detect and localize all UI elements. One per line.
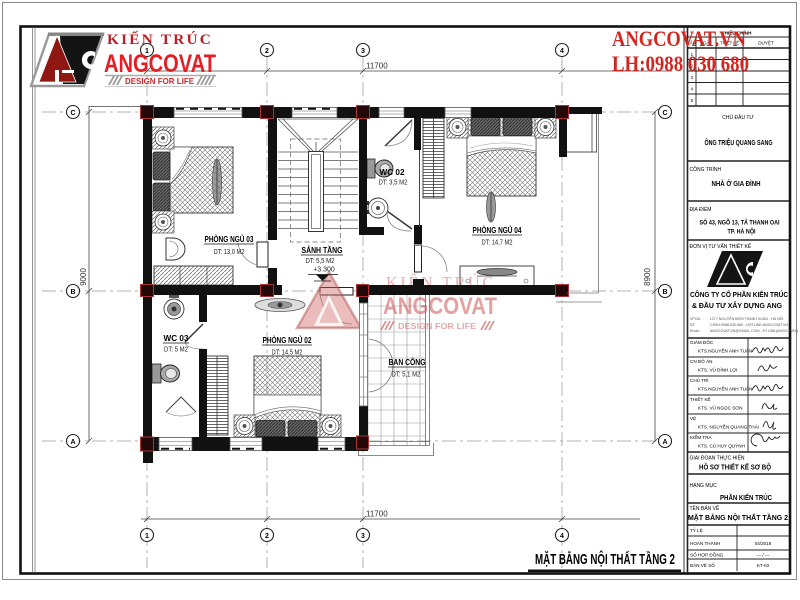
svg-text:DT: 3,5 M2: DT: 3,5 M2 <box>379 180 408 187</box>
svg-text:ĐỊA ĐIỂM: ĐỊA ĐIỂM <box>690 206 712 213</box>
svg-text:VẼ: VẼ <box>690 415 696 421</box>
svg-text:WC 02: WC 02 <box>380 167 405 177</box>
svg-text:DESIGN FOR LIFE: DESIGN FOR LIFE <box>125 76 194 86</box>
svg-text:3: 3 <box>361 48 365 55</box>
svg-text:HẠNG MỤC: HẠNG MỤC <box>690 483 718 489</box>
svg-text:A: A <box>662 439 667 446</box>
svg-text:SẢNH TẦNG: SẢNH TẦNG <box>302 244 343 255</box>
svg-text:DT: 5 M2: DT: 5 M2 <box>164 347 188 354</box>
svg-text:MẶT BẰNG NỘI THẤT TẦNG 2: MẶT BẰNG NỘI THẤT TẦNG 2 <box>535 550 675 568</box>
svg-text:TP. HÀ NỘI: TP. HÀ NỘI <box>728 227 756 236</box>
svg-text:4: 4 <box>560 533 564 540</box>
svg-text:HOÀN THÀNH: HOÀN THÀNH <box>690 540 720 546</box>
svg-text:CSKH:0988.030.680 - HOTLINE:AN: CSKH:0988.030.680 - HOTLINE:ANGCOVAT.VN <box>710 323 788 327</box>
svg-text:DT: 14,7 M2: DT: 14,7 M2 <box>482 240 513 247</box>
svg-text:& ĐẦU TƯ XÂY DỰNG ANG: & ĐẦU TƯ XÂY DỰNG ANG <box>692 300 782 310</box>
svg-text:3: 3 <box>361 533 365 540</box>
svg-text:Email:: Email: <box>690 329 700 333</box>
svg-text:CN ĐỒ ÁN: CN ĐỒ ÁN <box>690 358 712 364</box>
svg-text:ĐƠN VỊ TƯ VẤN THIẾT KẾ: ĐƠN VỊ TƯ VẤN THIẾT KẾ <box>690 243 752 250</box>
svg-text:LH:0988 030 680: LH:0988 030 680 <box>612 51 749 76</box>
svg-text:+3.300: +3.300 <box>313 267 335 274</box>
svg-text:KTS. VŨ NGỌC SƠN: KTS. VŨ NGỌC SƠN <box>698 405 743 411</box>
svg-text:--- / ---: --- / --- <box>756 553 769 558</box>
svg-text:VPGD:: VPGD: <box>690 317 701 321</box>
svg-text:CHỦ ĐẦU TƯ: CHỦ ĐẦU TƯ <box>722 114 754 121</box>
svg-text:ANGCOVAT: ANGCOVAT <box>104 50 216 78</box>
svg-text:PHÒNG NGỦ 02: PHÒNG NGỦ 02 <box>263 334 312 345</box>
svg-text:KTS. VŨ ĐÌNH LỢI: KTS. VŨ ĐÌNH LỢI <box>698 367 737 373</box>
svg-text:DT: 14,5 M2: DT: 14,5 M2 <box>272 350 303 357</box>
svg-text:KTS. CÙ HUY QUỲNH: KTS. CÙ HUY QUỲNH <box>698 443 745 449</box>
svg-text:ĐT:: ĐT: <box>690 323 696 327</box>
svg-text:1: 1 <box>145 533 149 540</box>
svg-text:9000: 9000 <box>79 268 88 286</box>
svg-text:KTS.NGUYỄN ANH TUẤN: KTS.NGUYỄN ANH TUẤN <box>698 386 752 392</box>
svg-text:TỶ LỆ: TỶ LỆ <box>690 526 703 533</box>
svg-text:KIẾN TRÚC: KIẾN TRÚC <box>107 31 213 48</box>
svg-text:PHÒNG NGỦ 04: PHÒNG NGỦ 04 <box>473 224 522 235</box>
svg-text:2: 2 <box>265 48 269 55</box>
svg-text:ÔNG TRIỆU QUANG SANG: ÔNG TRIỆU QUANG SANG <box>705 138 773 147</box>
svg-text:ANGCOVAT.VN@GMAIL.COM - KT.LIN: ANGCOVAT.VN@GMAIL.COM - KT.LINE(ANGCOVAT… <box>710 329 798 333</box>
svg-text:DT: 5,5 M2: DT: 5,5 M2 <box>306 258 335 265</box>
svg-text:BAN CÔNG: BAN CÔNG <box>389 356 426 367</box>
svg-text:4: 4 <box>560 48 564 55</box>
svg-text:KTS. NGUYỄN QUANG THÁI: KTS. NGUYỄN QUANG THÁI <box>698 424 759 430</box>
svg-text:ANGCOVAT.VN: ANGCOVAT.VN <box>612 26 746 51</box>
svg-text:04/2018: 04/2018 <box>755 541 772 546</box>
svg-text:ANGCOVAT: ANGCOVAT <box>383 293 497 320</box>
svg-text:2: 2 <box>265 533 269 540</box>
svg-text:GIÁM ĐỐC: GIÁM ĐỐC <box>690 339 714 345</box>
svg-text:DT: 13,0 M2: DT: 13,0 M2 <box>214 249 245 256</box>
svg-text:NHÀ Ở GIA ĐÌNH: NHÀ Ở GIA ĐÌNH <box>712 179 761 188</box>
svg-text:11700: 11700 <box>366 510 388 519</box>
svg-text:GIAI ĐOẠN THỰC HIỆN: GIAI ĐOẠN THỰC HIỆN <box>690 454 745 462</box>
svg-text:BẢN VẼ SỐ: BẢN VẼ SỐ <box>690 562 715 568</box>
svg-text:DESIGN FOR LIFE: DESIGN FOR LIFE <box>398 321 476 331</box>
svg-text:LÔ 7 NGUYỄN BIỂN THANH XUÂN -: LÔ 7 NGUYỄN BIỂN THANH XUÂN - HÀ NỘI <box>710 316 783 321</box>
svg-text:KT-03: KT-03 <box>757 563 770 568</box>
svg-text:B: B <box>662 289 667 296</box>
svg-text:CÔNG TY CỔ PHẦN KIẾN TRÚC: CÔNG TY CỔ PHẦN KIẾN TRÚC <box>690 289 789 299</box>
svg-text:11700: 11700 <box>366 62 388 71</box>
svg-text:C: C <box>662 110 667 117</box>
svg-text:DT: 5,1 M2: DT: 5,1 M2 <box>392 372 421 379</box>
svg-text:WC 03: WC 03 <box>164 333 189 343</box>
svg-text:TÊN BẢN VẼ: TÊN BẢN VẼ <box>690 504 720 512</box>
svg-text:KIỂM TRA: KIỂM TRA <box>690 434 713 440</box>
svg-text:THIẾT KẾ: THIẾT KẾ <box>690 396 711 402</box>
svg-text:KTS.NGUYỄN ANH TUẤN: KTS.NGUYỄN ANH TUẤN <box>698 348 752 354</box>
svg-text:B: B <box>70 289 75 296</box>
svg-text:CHỦ TRÌ: CHỦ TRÌ <box>690 377 709 383</box>
svg-text:PHÒNG NGỦ 03: PHÒNG NGỦ 03 <box>205 233 254 244</box>
svg-text:A: A <box>70 439 75 446</box>
svg-text:SỐ HỢP ĐỒNG: SỐ HỢP ĐỒNG <box>690 552 724 558</box>
svg-text:CÔNG TRÌNH: CÔNG TRÌNH <box>690 166 722 173</box>
svg-text:DUYỆT: DUYỆT <box>758 39 774 46</box>
svg-text:8900: 8900 <box>643 268 652 286</box>
svg-text:C: C <box>70 110 75 117</box>
